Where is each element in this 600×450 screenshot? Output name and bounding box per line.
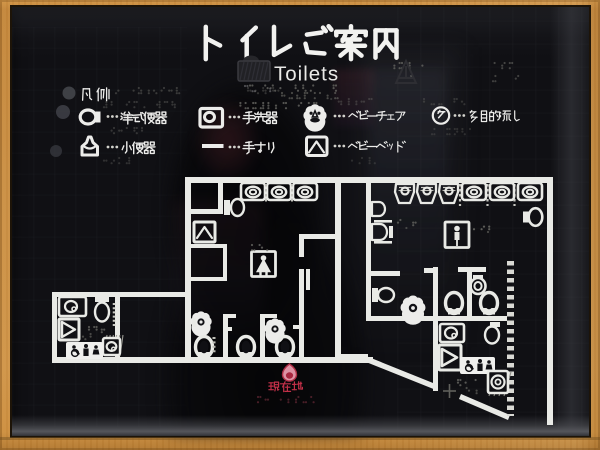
svg-text:Toilets: Toilets [274, 63, 339, 86]
